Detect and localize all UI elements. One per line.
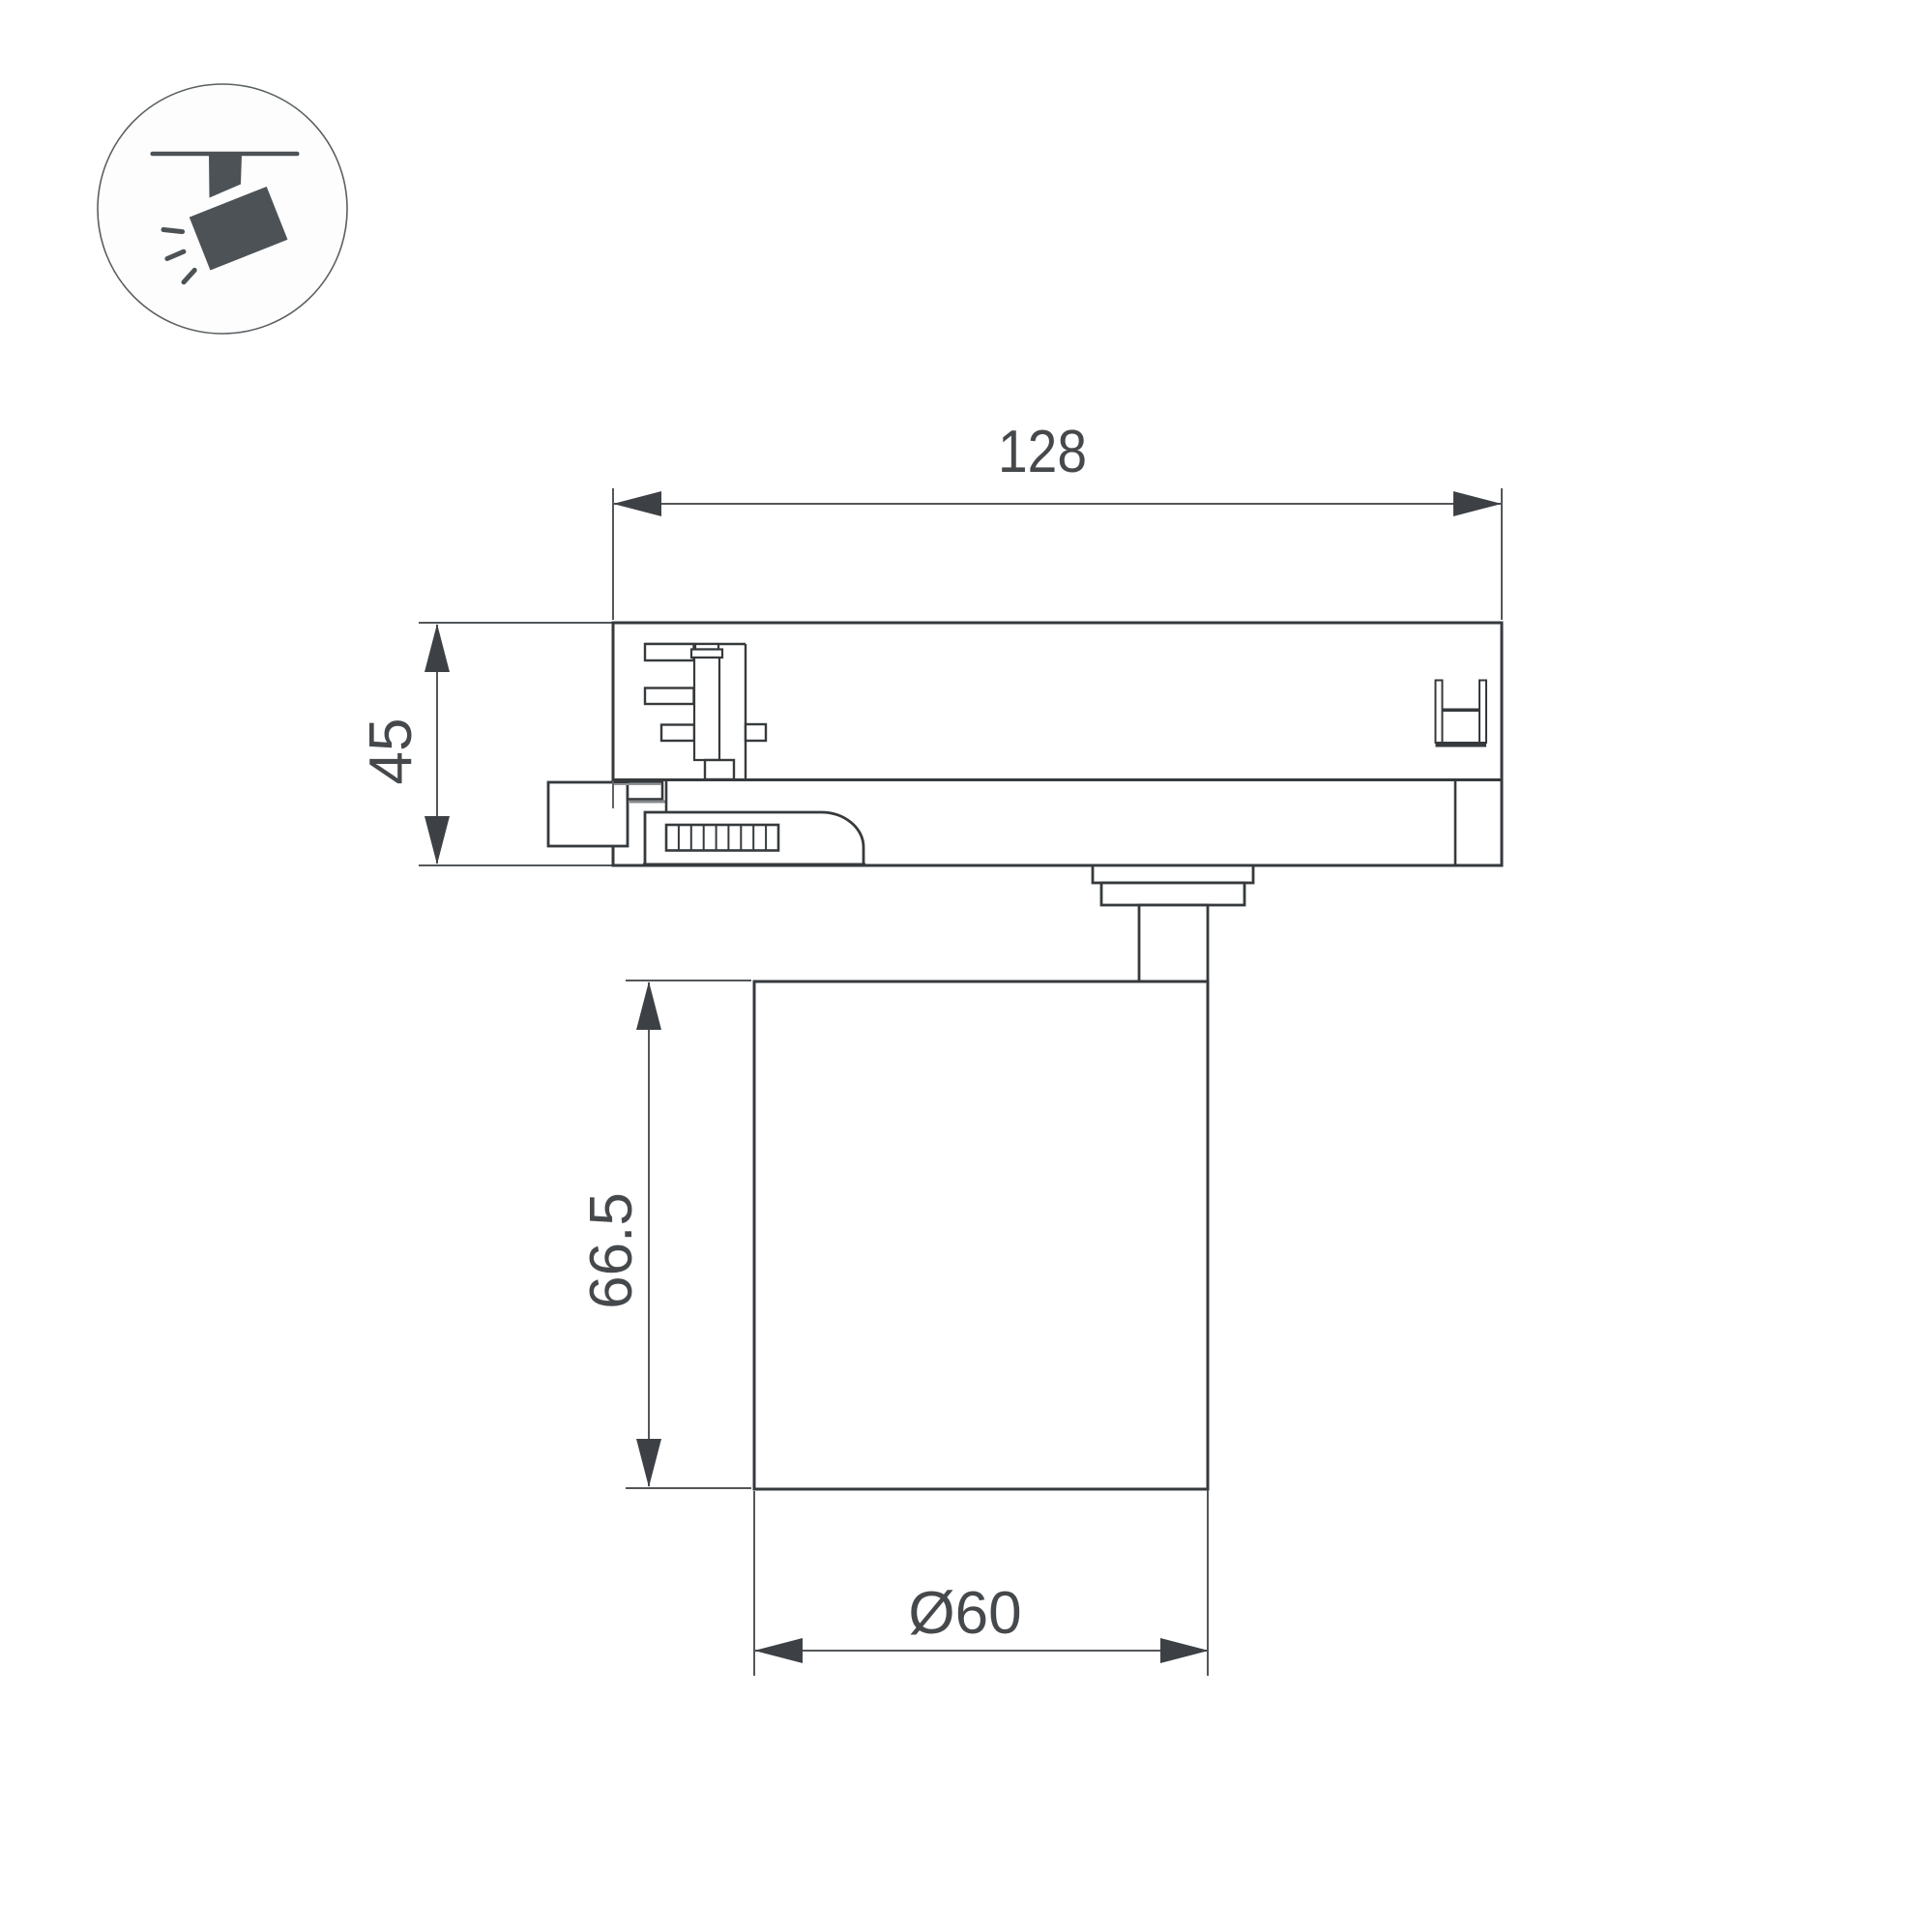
svg-text:66.5: 66.5 [578,1192,645,1309]
svg-text:128: 128 [998,419,1087,485]
svg-text:Ø60: Ø60 [908,1580,1021,1647]
svg-text:45: 45 [358,718,424,785]
